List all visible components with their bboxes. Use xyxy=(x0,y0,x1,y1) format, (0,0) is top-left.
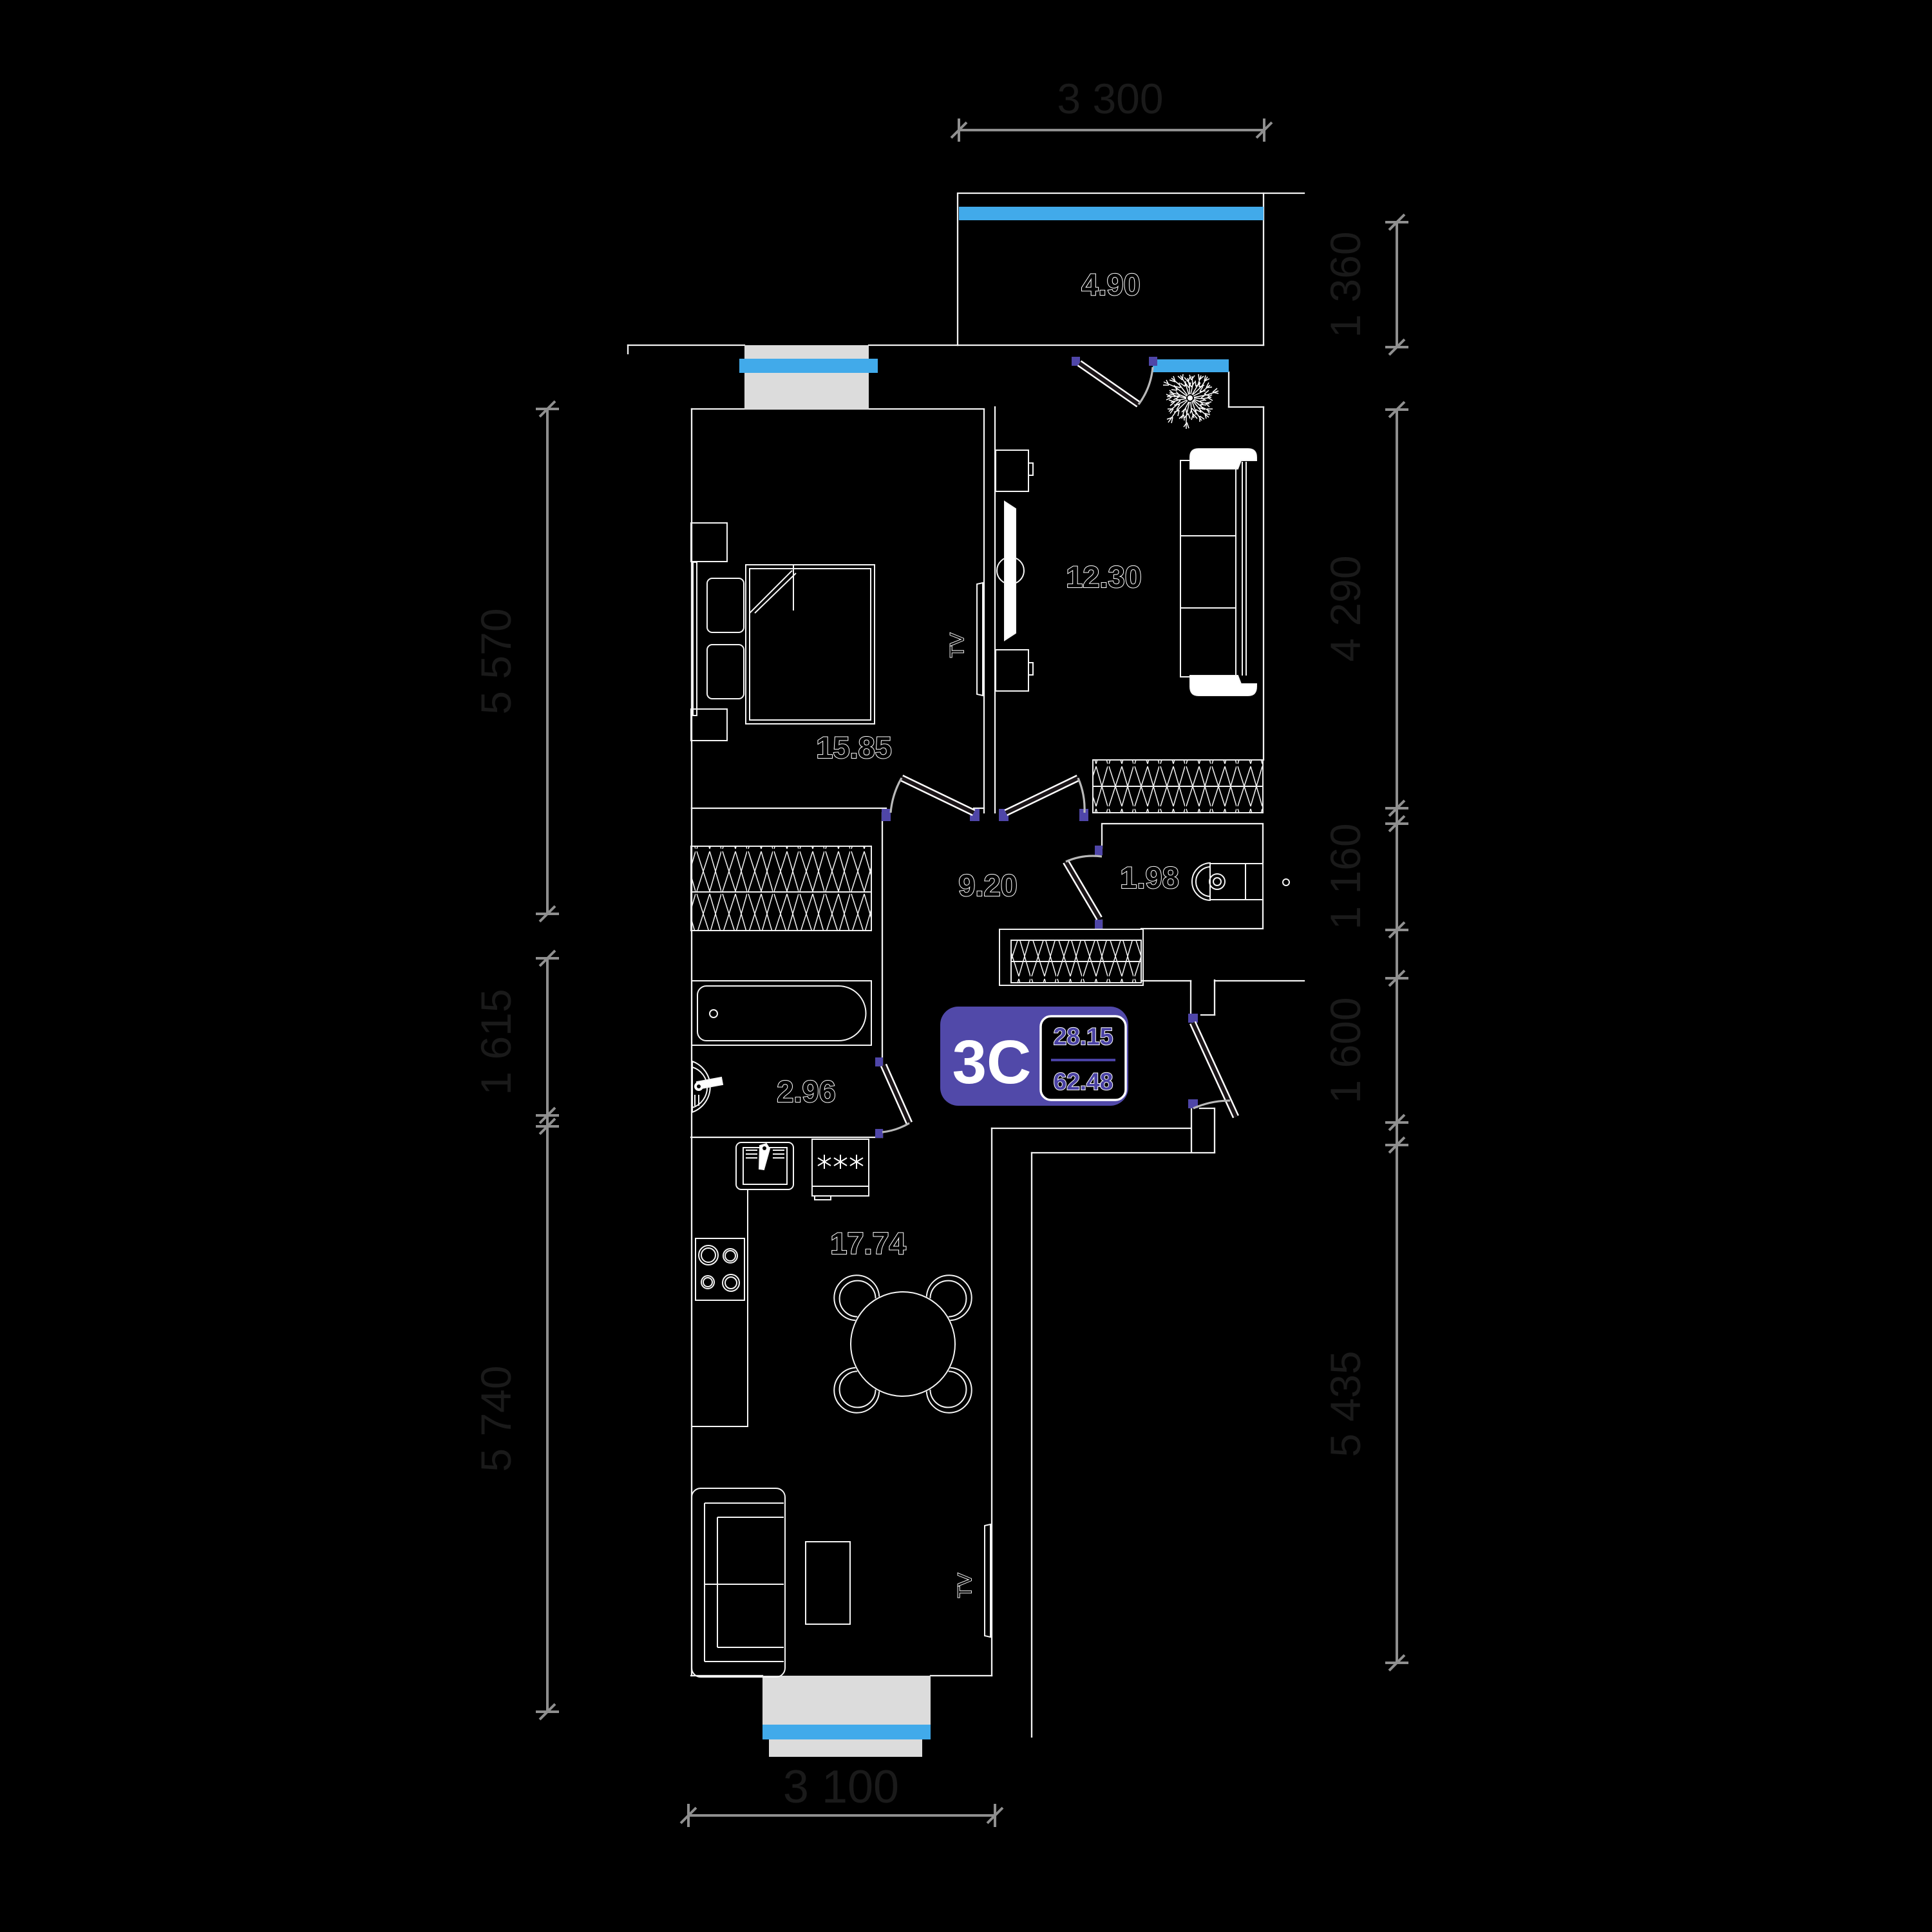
svg-text:1 615: 1 615 xyxy=(472,989,520,1095)
svg-text:1.98: 1.98 xyxy=(1120,860,1179,895)
svg-text:TV: TV xyxy=(947,633,968,658)
svg-text:1 600: 1 600 xyxy=(1321,997,1369,1103)
svg-text:2.96: 2.96 xyxy=(777,1074,835,1108)
svg-text:TV: TV xyxy=(954,1573,976,1598)
svg-text:15.85: 15.85 xyxy=(816,730,892,764)
svg-text:17.74: 17.74 xyxy=(830,1226,906,1260)
svg-text:1 360: 1 360 xyxy=(1321,231,1369,337)
svg-text:62.48: 62.48 xyxy=(1054,1068,1113,1095)
svg-text:5 740: 5 740 xyxy=(472,1365,520,1472)
svg-text:28.15: 28.15 xyxy=(1054,1023,1113,1050)
svg-text:3С: 3С xyxy=(952,1028,1032,1097)
svg-text:3 300: 3 300 xyxy=(1057,75,1163,122)
svg-text:9.20: 9.20 xyxy=(958,868,1017,902)
svg-text:5 435: 5 435 xyxy=(1321,1350,1369,1457)
svg-text:4 290: 4 290 xyxy=(1321,555,1369,661)
svg-text:3 100: 3 100 xyxy=(783,1761,899,1813)
svg-text:5 570: 5 570 xyxy=(472,608,520,714)
svg-text:1 160: 1 160 xyxy=(1321,823,1369,929)
svg-text:4.90: 4.90 xyxy=(1081,267,1140,301)
svg-text:12.30: 12.30 xyxy=(1066,560,1142,594)
